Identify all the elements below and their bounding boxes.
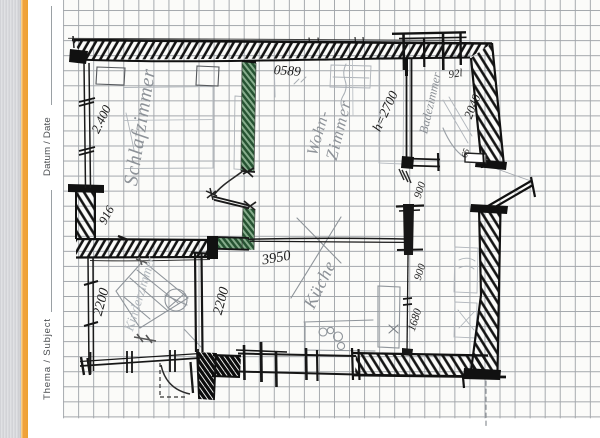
svg-text:0589: 0589 [273, 62, 301, 79]
svg-text:92l: 92l [448, 67, 464, 81]
